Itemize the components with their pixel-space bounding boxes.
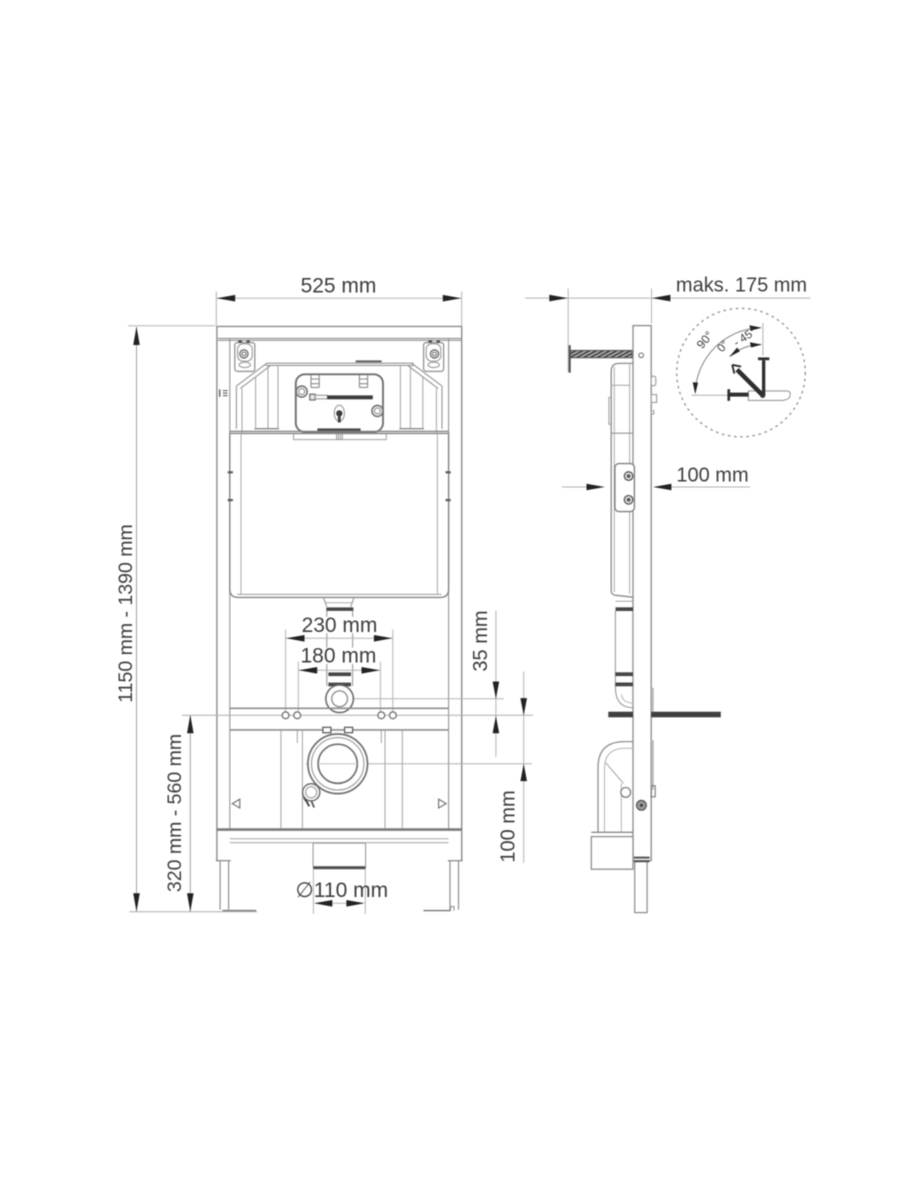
svg-text:90°: 90° — [694, 328, 717, 351]
svg-text:0°: 0° — [715, 339, 731, 355]
svg-text:35 mm: 35 mm — [470, 610, 492, 671]
svg-text:∅110 mm: ∅110 mm — [296, 879, 389, 902]
svg-text:100 mm: 100 mm — [498, 790, 520, 862]
svg-text:320 mm - 560 mm: 320 mm - 560 mm — [164, 734, 186, 892]
svg-text:1150 mm - 1390 mm: 1150 mm - 1390 mm — [115, 524, 137, 702]
svg-text:525 mm: 525 mm — [301, 275, 377, 298]
svg-text:100 mm: 100 mm — [676, 465, 748, 487]
svg-text:230 mm: 230 mm — [302, 614, 378, 637]
svg-text:180 mm: 180 mm — [300, 645, 376, 668]
svg-text:maks. 175 mm: maks. 175 mm — [676, 274, 807, 296]
